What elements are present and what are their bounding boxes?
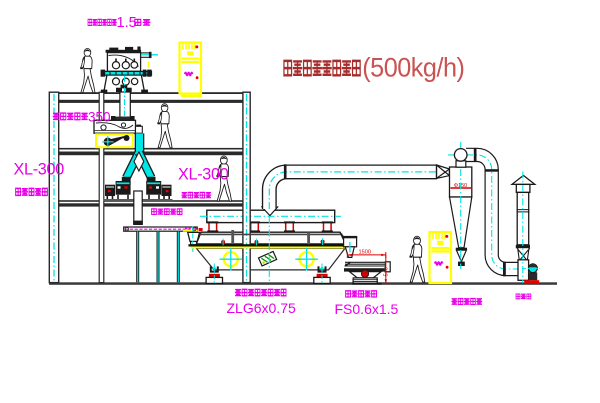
svg-text:1.5: 1.5 <box>117 15 137 31</box>
svg-text:XL-300: XL-300 <box>14 161 65 179</box>
svg-text:XL-300: XL-300 <box>178 166 229 184</box>
svg-text:(500kg/h): (500kg/h) <box>362 54 464 83</box>
svg-text:1500: 1500 <box>359 250 371 256</box>
svg-text:FS0.6x1.5: FS0.6x1.5 <box>335 301 399 317</box>
svg-text:ZLG6x0.75: ZLG6x0.75 <box>227 300 296 316</box>
svg-text:540: 540 <box>384 267 390 276</box>
svg-text:350: 350 <box>88 110 111 125</box>
